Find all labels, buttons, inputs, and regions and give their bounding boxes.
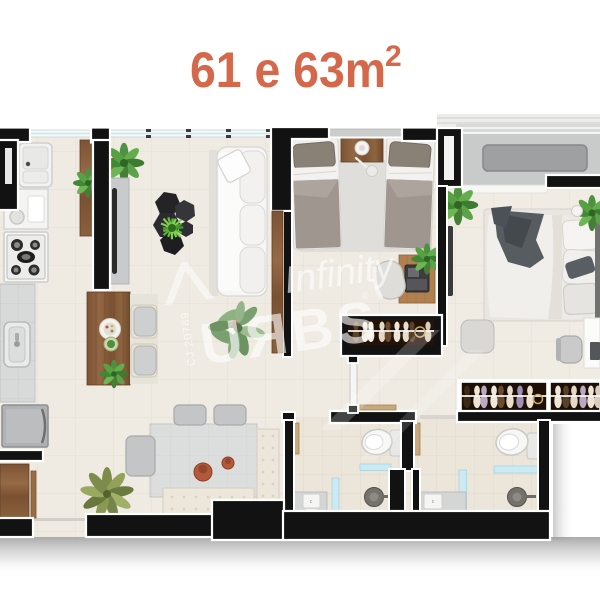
svg-text:2: 2 xyxy=(385,40,402,73)
svg-text:61 e 63m: 61 e 63m xyxy=(190,42,386,98)
